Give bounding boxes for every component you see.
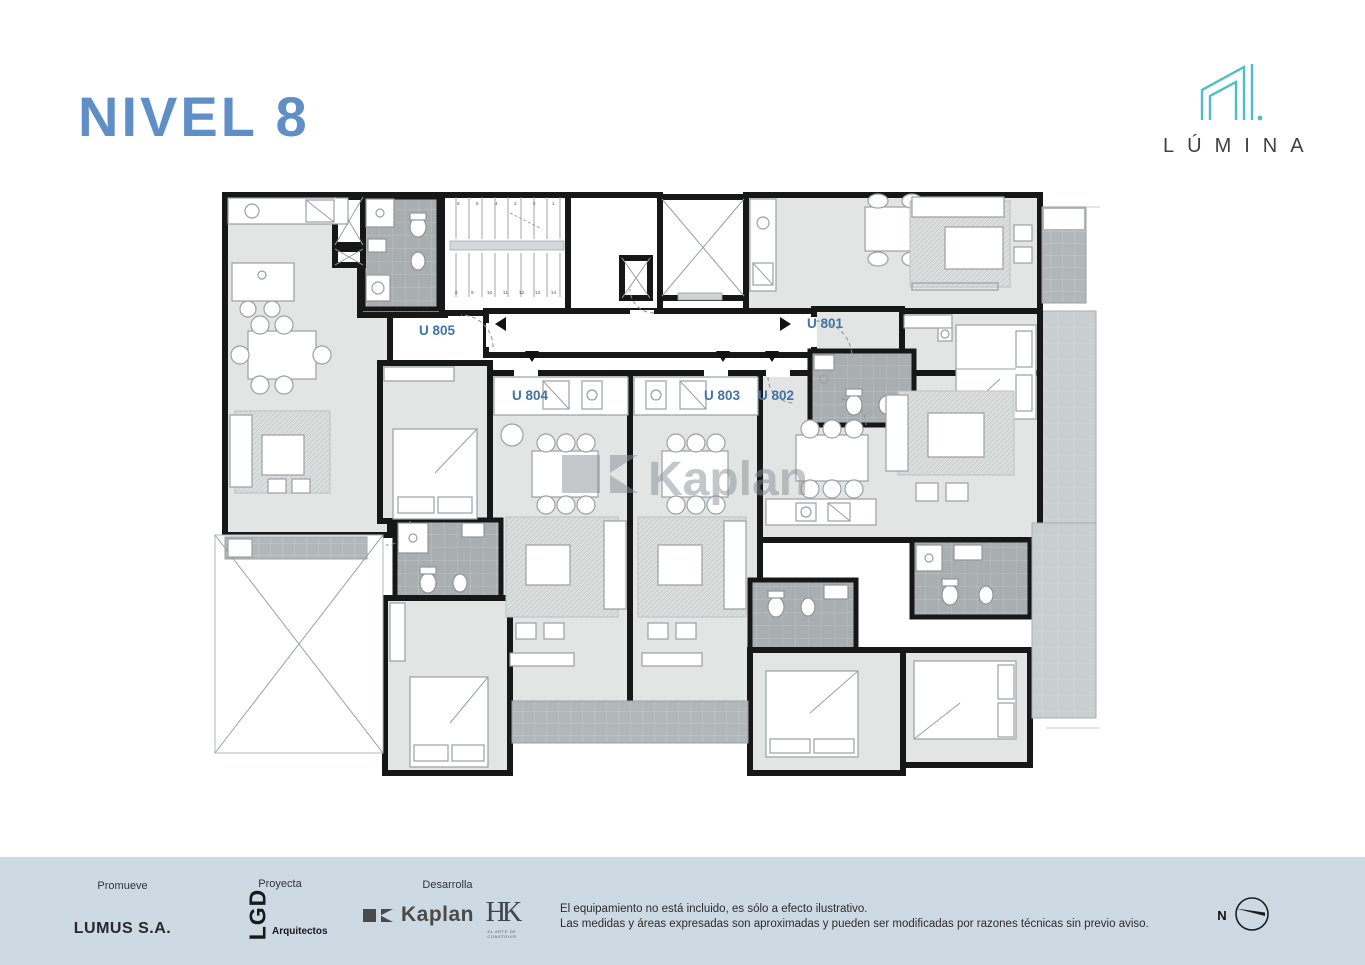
unit-label-u801: U 801 bbox=[807, 316, 844, 331]
kaplan-logo-icon bbox=[363, 907, 395, 924]
svg-text:12: 12 bbox=[519, 290, 525, 295]
hk-text: HK bbox=[474, 899, 530, 927]
page-title: NIVEL 8 bbox=[78, 84, 310, 149]
hk-tagline: EL ARTE DE CONSTRUIR bbox=[474, 929, 530, 939]
page: NIVEL 8 LÚMINA bbox=[0, 0, 1365, 965]
svg-text:14: 14 bbox=[551, 290, 557, 295]
svg-text:3: 3 bbox=[514, 201, 517, 206]
floor-plan: 6 5 4 3 2 1 8 9 10 11 12 13 14 bbox=[210, 183, 1100, 795]
lumus-name: LUMUS S.A. bbox=[40, 920, 205, 938]
svg-text:5: 5 bbox=[476, 201, 479, 206]
desarrolla-label: Desarrolla bbox=[400, 879, 495, 891]
hk-logo: HK EL ARTE DE CONSTRUIR bbox=[474, 899, 530, 939]
floor-plan-svg: 6 5 4 3 2 1 8 9 10 11 12 13 14 bbox=[210, 183, 1100, 795]
lumina-logo-icon bbox=[1188, 60, 1272, 122]
north-compass: N bbox=[1206, 892, 1278, 943]
svg-text:9: 9 bbox=[471, 290, 474, 295]
svg-text:2: 2 bbox=[533, 201, 536, 206]
svg-text:4: 4 bbox=[495, 201, 498, 206]
balcony-center bbox=[512, 701, 748, 743]
compass-needle bbox=[1236, 909, 1265, 917]
elevator-door bbox=[678, 293, 722, 300]
disclaimer-line1: El equipamiento no está incluido, es sól… bbox=[560, 902, 1149, 917]
room-corridor bbox=[486, 311, 816, 355]
room-stairwell bbox=[442, 195, 568, 313]
brand-name: LÚMINA bbox=[1150, 135, 1310, 158]
svg-text:6: 6 bbox=[457, 201, 460, 206]
arquitectos-text: Arquitectos bbox=[272, 926, 328, 937]
north-label: N bbox=[1217, 908, 1226, 923]
watermark-text: Kaplan bbox=[648, 453, 808, 506]
svg-text:11: 11 bbox=[503, 290, 508, 295]
unit-label-u803: U 803 bbox=[704, 388, 741, 403]
kaplan-text: Kaplan bbox=[401, 903, 474, 927]
disclaimer: El equipamiento no está incluido, es sól… bbox=[560, 902, 1149, 932]
unit-label-u804: U 804 bbox=[512, 388, 549, 403]
kaplan-logo: Kaplan bbox=[363, 903, 474, 927]
svg-text:13: 13 bbox=[535, 290, 541, 295]
unit-label-u805: U 805 bbox=[419, 323, 456, 338]
lgd-text: LGD bbox=[245, 888, 272, 940]
north-compass-icon: N bbox=[1206, 892, 1278, 938]
svg-text:1: 1 bbox=[552, 201, 555, 206]
promueve-label: Promueve bbox=[75, 880, 170, 892]
brand-block: LÚMINA bbox=[1150, 60, 1310, 158]
disclaimer-line2: Las medidas y áreas expresadas son aprox… bbox=[560, 917, 1149, 932]
svg-text:10: 10 bbox=[487, 290, 493, 295]
unit-label-u802: U 802 bbox=[758, 388, 794, 403]
terrace-right-low bbox=[1032, 523, 1096, 718]
svg-text:8: 8 bbox=[455, 290, 458, 295]
